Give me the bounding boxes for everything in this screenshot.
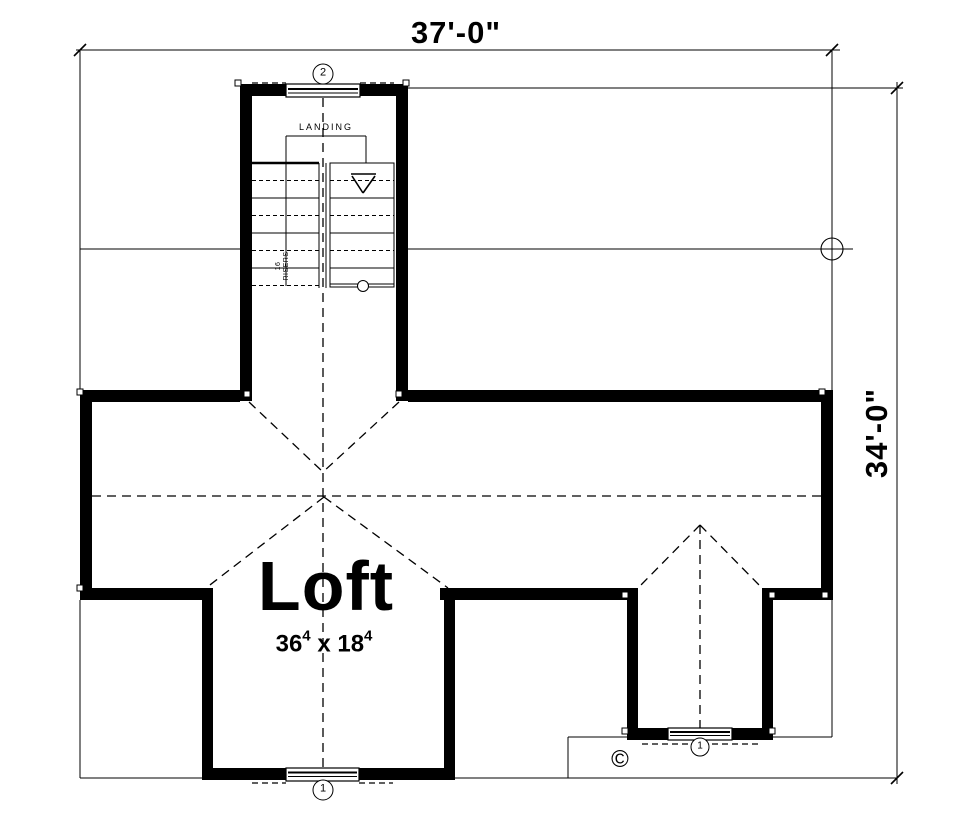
floor-plan: 37'-0" 34'-0" LANDING 16 RISERS Loft 364… bbox=[0, 0, 968, 813]
stair-treads-right bbox=[330, 163, 394, 287]
stair-riser-note-line2: RISERS bbox=[283, 251, 291, 280]
overhang-dashes bbox=[252, 83, 758, 783]
floor-plan-linework bbox=[0, 0, 968, 813]
top-dimension-label: 37'-0" bbox=[411, 15, 501, 51]
room-size-width-inches: 4 bbox=[302, 628, 310, 645]
copyright-symbol: © bbox=[611, 746, 629, 774]
window-tag-dormer: 1 bbox=[691, 738, 710, 757]
room-name-label: Loft bbox=[258, 546, 394, 626]
landing-label: LANDING bbox=[299, 122, 353, 132]
stair-direction-arrow bbox=[351, 174, 376, 193]
window-tag-top: 2 bbox=[313, 64, 334, 85]
dimension-lines bbox=[76, 50, 903, 784]
eave-lines bbox=[80, 249, 853, 778]
dimension-tick-marks bbox=[74, 44, 903, 784]
newel-circle bbox=[358, 281, 369, 292]
room-size-height: 18 bbox=[337, 631, 364, 658]
right-dimension-label: 34'-0" bbox=[859, 388, 895, 478]
window-symbol-top bbox=[286, 84, 360, 97]
room-size-separator: x bbox=[317, 631, 330, 658]
stair-riser-note: 16 RISERS bbox=[275, 251, 291, 280]
room-size-width: 36 bbox=[276, 631, 303, 658]
room-size-height-inches: 4 bbox=[364, 628, 372, 645]
roof-lines bbox=[92, 98, 821, 768]
room-size-label: 364 x 184 bbox=[276, 630, 373, 659]
window-tag-bottom-left: 1 bbox=[313, 780, 334, 801]
stair-riser-note-line1: 16 bbox=[275, 251, 283, 280]
exterior-walls bbox=[80, 84, 833, 780]
